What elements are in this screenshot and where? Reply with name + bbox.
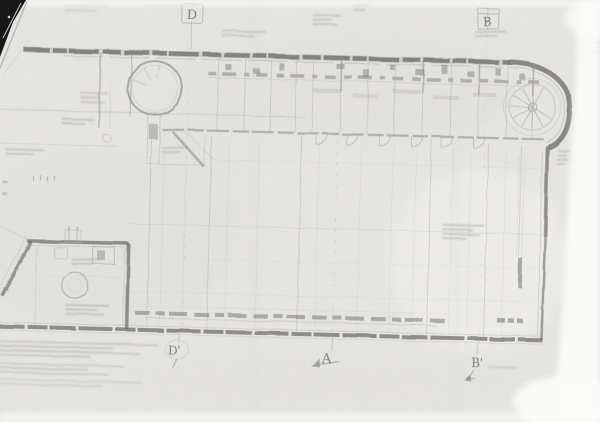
section-marker-d-prime-label: D' xyxy=(168,344,181,358)
section-marker-a-label: A xyxy=(321,352,332,367)
section-marker-b-prime-label: B' xyxy=(471,356,483,370)
section-marker-b-label: B xyxy=(483,15,492,29)
scanned-floor-plan-page: D B D' A B' xyxy=(0,0,600,422)
floor-plan-scan-image: D B D' A B' xyxy=(0,0,600,422)
section-marker-d-label: D xyxy=(187,8,198,23)
